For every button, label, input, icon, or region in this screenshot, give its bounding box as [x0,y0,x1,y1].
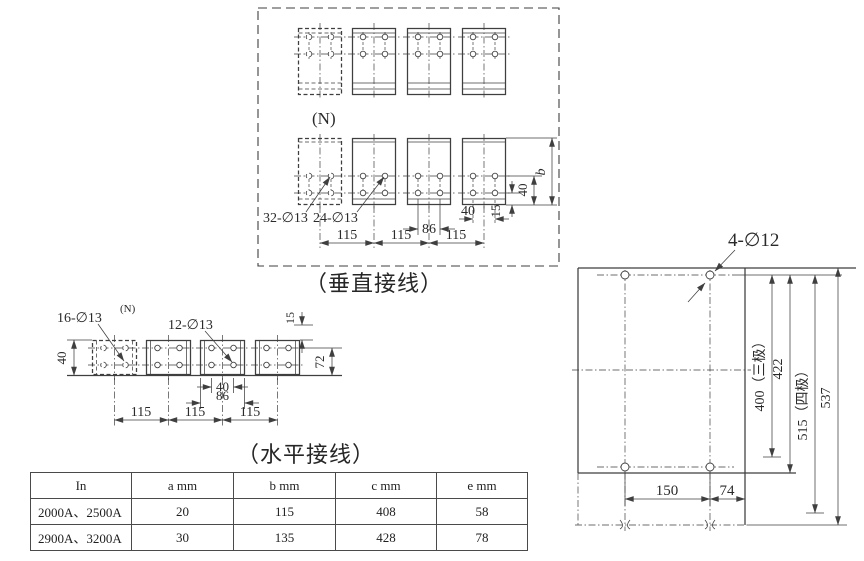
mounting-plate-drawing: 4-∅12 400（三极） 422 515（四极） [572,226,864,541]
table-header-a: a mm [132,473,234,499]
dim-400-3pole: 400（三极） [752,335,768,412]
dim-515-4pole: 515（四极） [795,364,811,441]
dim-b: b [534,169,549,176]
dim-537: 537 [819,388,834,409]
dim-150: 150 [656,483,679,499]
hole-callout-12: 12-∅13 [168,318,213,333]
terminal-block-neutral [294,23,346,100]
terminal-block [142,335,195,380]
hole-callout-16: 16-∅13 [57,311,102,326]
hole-callout-4x12: 4-∅12 [728,230,779,251]
terminal-block [251,335,304,380]
terminal-block-neutral [294,134,346,211]
table-header-in: In [31,473,132,499]
terminal-block [348,23,400,100]
dim-422: 422 [771,359,786,380]
dim-74: 74 [720,483,736,499]
plate-outline [572,268,856,531]
table-cell: 30 [132,525,234,551]
table-cell: 408 [336,499,437,525]
terminal-block-neutral [88,335,141,380]
dim-pitch-1: 115 [131,405,151,420]
terminal-block [403,23,455,100]
vertical-wiring-drawing: (N) 32-∅13 24-∅13 86 40 115 [256,6,562,270]
dim-72: 72 [312,356,327,369]
vertical-bottom-terminal-row [294,134,510,211]
table-header-e: e mm [437,473,528,499]
dim-pitch-1: 115 [337,228,357,243]
dim-40-left: 40 [54,352,69,365]
terminal-block [348,134,400,211]
table-cell: 20 [132,499,234,525]
dim-pitch-3: 115 [240,405,260,420]
horizontal-wiring-drawing: (N) 16-∅13 12-∅13 40 40 86 115 115 115 [30,292,360,442]
hole-callout-32: 32-∅13 [263,211,308,226]
dim-40-vertical: 40 [515,184,530,197]
terminal-block [196,335,249,380]
neutral-pole-label: (N) [312,109,336,128]
table-cell-rating: 2900A、3200A [31,525,132,551]
table-row: 2000A、2500A 20 115 408 58 [31,499,528,525]
table-cell-rating: 2000A、2500A [31,499,132,525]
dimension-table: In a mm b mm c mm e mm 2000A、2500A 20 11… [30,472,528,551]
dim-pitch-2: 115 [391,228,411,243]
table-header-c: c mm [336,473,437,499]
dim-pitch-3: 115 [446,228,466,243]
table-cell: 115 [234,499,336,525]
table-cell: 135 [234,525,336,551]
terminal-block [403,134,455,211]
dim-pitch-2: 115 [185,405,205,420]
dim-40-horizontal: 40 [461,204,475,219]
table-cell: 428 [336,525,437,551]
dim-15: 15 [283,312,297,324]
terminal-block [458,134,510,211]
technical-drawing-canvas: (N) 32-∅13 24-∅13 86 40 115 [0,0,864,561]
table-row: 2900A、3200A 30 135 428 78 [31,525,528,551]
caption-horizontal-wiring: （水平接线） [237,437,375,469]
table-header-b: b mm [234,473,336,499]
table-cell: 58 [437,499,528,525]
table-cell: 78 [437,525,528,551]
vertical-top-terminal-row [294,23,510,100]
terminal-block [458,23,510,100]
table-header-row: In a mm b mm c mm e mm [31,473,528,499]
neutral-pole-label: (N) [120,303,136,315]
dim-15: 15 [488,205,503,218]
